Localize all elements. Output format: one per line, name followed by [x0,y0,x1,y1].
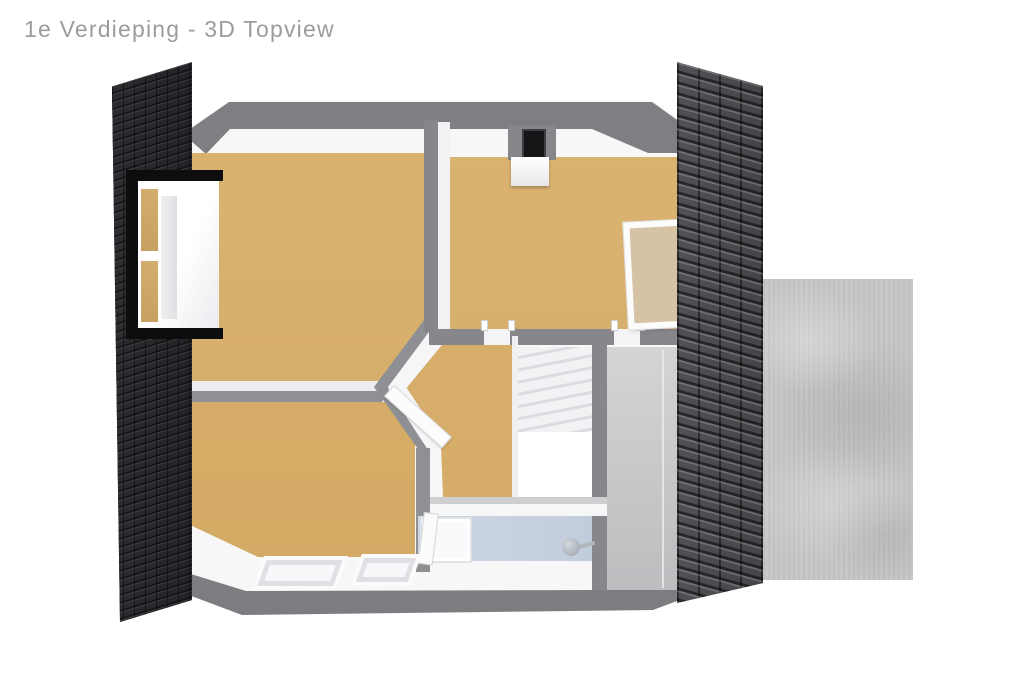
dormer-window-frame-left [126,170,138,339]
bathroom-north-wall-face [430,504,607,516]
roof-left-tile-pattern [112,62,192,646]
floorplan-canvas: 1e Verdieping - 3D Topview [0,0,1024,683]
skylight-pane [362,563,409,577]
door-frame-mark [508,320,515,331]
shower-head [562,538,580,556]
landing-gray-floor [607,347,677,590]
skylight-1 [252,556,348,590]
page-title: 1e Verdieping - 3D Topview [24,16,335,43]
dormer-window-pane-lower [141,261,158,322]
wall-stairs-landing [592,329,607,590]
roof-left-tiles [112,62,192,622]
dormer-window-frame-bottom [126,328,223,339]
landing-edge-line [662,350,664,588]
skylight-pane [264,565,336,581]
roof-right-tile-pattern [677,62,763,646]
dormer-window-frame-top [126,170,223,181]
wall-top-right-bedroom-south [429,329,681,345]
door-opening-landing [614,329,640,345]
stair-steps [518,347,592,432]
door-frame-mark [611,320,618,331]
door-opening-hallway [484,329,510,345]
dormer-window-pane-upper [141,189,158,251]
wall-between-top-bedrooms-face [438,122,450,332]
door-frame-mark [481,320,488,331]
wall-between-top-bedrooms [424,120,438,332]
bathroom-north-wall-top [430,497,607,504]
skylight-2 [350,554,422,586]
dormer-window-pane-side [161,196,177,319]
roof-right-tiles [677,62,763,603]
concrete-terrace [763,279,913,580]
chimney-block [511,157,549,186]
